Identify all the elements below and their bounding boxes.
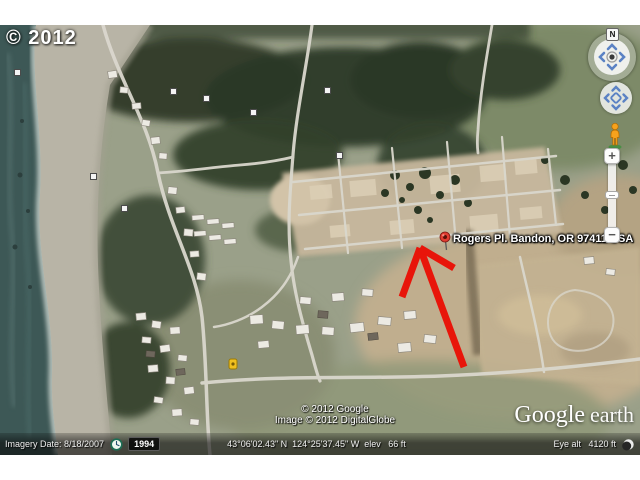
photo-marker-icon[interactable]: [90, 173, 97, 180]
eye-altitude: Eye alt 4120 ft: [553, 439, 616, 449]
north-indicator[interactable]: N: [606, 28, 619, 41]
red-arrow-annotation: [395, 243, 475, 375]
red-pushpin-icon[interactable]: [437, 230, 453, 252]
look-joystick-face[interactable]: [594, 39, 630, 75]
look-down-icon: [608, 65, 616, 69]
photo-marker-icon[interactable]: [250, 109, 257, 116]
look-joystick[interactable]: N: [588, 33, 636, 81]
imagery-date: Imagery Date: 8/18/2007: [5, 439, 104, 449]
zoom-handle[interactable]: [605, 191, 619, 199]
imagery-copyright: © 2012: [6, 27, 77, 50]
google-earth-logo: Googleearth: [514, 402, 634, 429]
yellow-marker-icon[interactable]: [228, 358, 238, 376]
history-year-badge: 1994: [128, 437, 160, 451]
zoom-out-button[interactable]: −: [604, 227, 620, 243]
streaming-indicator-icon: [622, 438, 635, 451]
historical-imagery-clock-icon[interactable]: [110, 438, 123, 451]
pegman-icon[interactable]: [607, 122, 623, 150]
look-up-icon: [608, 45, 616, 49]
status-bar: Imagery Date: 8/18/2007 1994 43°06'02.43…: [0, 433, 640, 455]
zoom-slider[interactable]: + −: [604, 148, 620, 243]
look-center-eye-icon: [609, 54, 614, 59]
status-right-group: Eye alt 4120 ft: [553, 438, 635, 451]
pan-down-icon: [613, 106, 620, 110]
photo-marker-icon[interactable]: [14, 69, 21, 76]
move-joystick[interactable]: [600, 82, 632, 114]
photo-marker-icon[interactable]: [203, 95, 210, 102]
look-right-icon: [620, 53, 624, 61]
logo-google-text: Google: [514, 402, 585, 428]
logo-earth-text: earth: [590, 402, 634, 427]
map-viewport[interactable]: © 2012: [0, 25, 640, 455]
pointer-coordinates: 43°06'02.43" N 124°25'37.45" W elev 66 f…: [227, 439, 406, 449]
pan-left-icon: [605, 95, 609, 102]
google-earth-window: © 2012: [0, 0, 640, 480]
look-left-icon: [600, 53, 604, 61]
pan-right-icon: [624, 95, 628, 102]
status-left-group: Imagery Date: 8/18/2007 1994: [5, 437, 160, 451]
photo-marker-icon[interactable]: [121, 205, 128, 212]
photo-marker-icon[interactable]: [324, 87, 331, 94]
pan-center-diamond-icon: [611, 93, 622, 104]
pan-up-icon: [613, 87, 620, 91]
photo-marker-icon[interactable]: [170, 88, 177, 95]
photo-marker-icon[interactable]: [336, 152, 343, 159]
zoom-in-button[interactable]: +: [604, 148, 620, 164]
